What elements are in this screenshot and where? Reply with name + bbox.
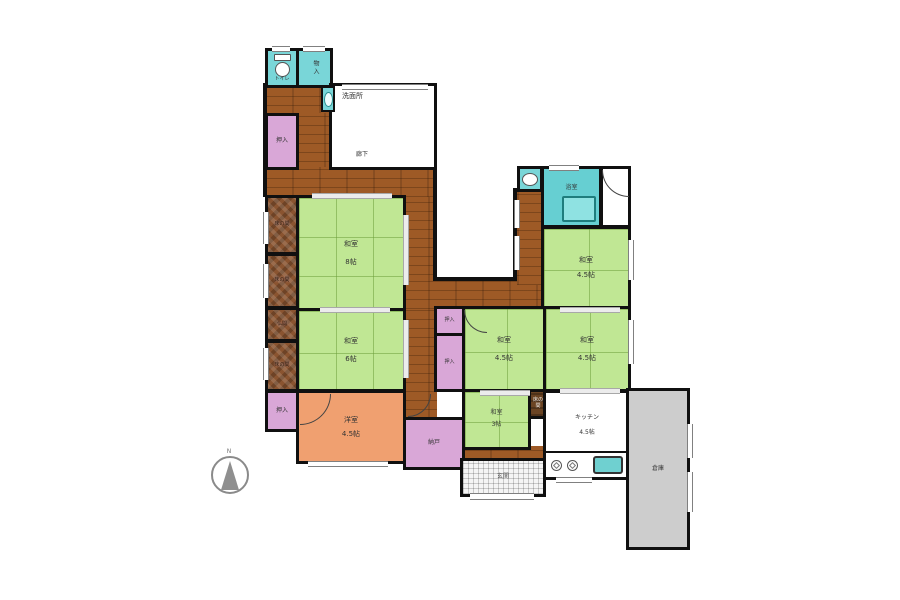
washroom-label: 洗面所 [342, 92, 363, 100]
window [549, 165, 579, 171]
floor-plan: トイレ 物入 押入 洗面所 廊下 床の間 床の間 仏間 床の間 押入 和室 8帖… [0, 0, 900, 600]
room-washitsu-3: 和室 3帖 [462, 389, 531, 450]
sliding-door [480, 390, 530, 396]
compass: N [210, 452, 248, 494]
entrance-label: 玄関 [497, 474, 509, 481]
room-size: 4.5帖 [495, 354, 513, 362]
window [263, 212, 269, 244]
sliding-door [560, 388, 620, 394]
window [263, 348, 269, 380]
corridor-left-upper [297, 113, 333, 171]
stove-burner-icon [567, 460, 578, 471]
window [308, 461, 388, 467]
altar-room-label: 仏間 [277, 322, 287, 328]
storeroom-label: 納戸 [428, 440, 440, 447]
room-size: 4.5帖 [577, 271, 595, 279]
window [342, 84, 428, 90]
window [272, 46, 290, 52]
room-size: 4.5帖 [578, 354, 596, 362]
bathroom-label: 浴室 [565, 185, 577, 192]
compass-north-label: N [227, 448, 232, 455]
room-size: 6帖 [345, 355, 356, 363]
toilet-label: トイレ [274, 77, 289, 83]
room-size: 4.5帖 [342, 430, 360, 438]
kitchen-sink-icon [593, 456, 623, 474]
window [687, 472, 693, 512]
room-washitsu-top-right: 和室 4.5帖 [541, 226, 631, 309]
room-washitsu-8: 和室 8帖 [296, 195, 406, 311]
bathtub-icon [562, 196, 596, 222]
window [303, 46, 325, 52]
window [687, 424, 693, 458]
closet-label: 押入 [444, 318, 454, 324]
room-toilet: トイレ [265, 48, 299, 88]
room-alcove-2: 床の間 [265, 253, 299, 309]
room-washitsu-6: 和室 6帖 [296, 308, 406, 392]
room-warehouse: 倉庫 [626, 388, 690, 550]
room-size: 8帖 [345, 258, 356, 266]
room-altar: 仏間 [265, 307, 299, 342]
window [628, 320, 634, 364]
room-storeroom: 納戸 [403, 417, 465, 470]
room-name: 和室 [580, 336, 594, 344]
room-name: 和室 [344, 240, 358, 248]
alcove-label: 床の間 [274, 278, 289, 284]
room-closet-2: 押入 [265, 390, 299, 432]
room-size: 4.5帖 [579, 430, 595, 437]
sliding-door [312, 193, 392, 199]
wall-courtyard-left [433, 165, 437, 281]
sliding-door [560, 307, 620, 313]
room-toilet-2 [517, 166, 543, 192]
window [556, 477, 592, 483]
alcove-label: 床の間 [274, 222, 289, 228]
room-alcove-1: 床の間 [265, 195, 299, 255]
room-name: 和室 [579, 256, 593, 264]
room-washitsu-right: 和室 4.5帖 [543, 306, 631, 392]
window [628, 240, 634, 280]
room-closet-4: 押入 [434, 333, 465, 392]
window [514, 236, 520, 270]
sliding-door [320, 307, 390, 313]
entrance-sliding-door [470, 493, 534, 500]
toilet-icon [274, 54, 291, 77]
window [514, 200, 520, 228]
washbasin-icon [321, 86, 335, 112]
sliding-door [403, 215, 409, 285]
corridor-lower-horizontal [401, 281, 545, 309]
room-name: 和室 [497, 336, 511, 344]
hallway-label: 廊下 [356, 152, 368, 159]
room-entrance: 玄関 [460, 458, 546, 497]
room-closet-3: 押入 [434, 306, 465, 336]
kitchen-counter [546, 451, 628, 477]
room-alcove-3: 床の間 [265, 340, 299, 392]
sliding-door [403, 320, 409, 378]
room-name: 和室 [490, 410, 502, 417]
room-bathroom: 浴室 [541, 166, 602, 228]
alcove-label: 床の間 [274, 363, 289, 369]
room-name: 和室 [344, 337, 358, 345]
closet-label: 押入 [276, 408, 288, 415]
room-storage: 物入 [296, 48, 333, 88]
warehouse-label: 倉庫 [652, 466, 664, 473]
toilet-2-icon [522, 173, 538, 186]
stove-burner-icon [551, 460, 562, 471]
closet-label: 押入 [276, 138, 288, 145]
room-name: キッチン [575, 415, 599, 422]
compass-circle [211, 456, 249, 494]
room-kitchen: キッチン 4.5帖 [543, 390, 631, 480]
closet-label: 押入 [444, 360, 454, 366]
compass-needle-icon [221, 461, 239, 490]
wall-courtyard-bottom [433, 277, 517, 281]
room-name: 洋室 [344, 416, 358, 424]
window [263, 264, 269, 298]
room-closet-1: 押入 [265, 113, 299, 170]
storage-label: 物入 [311, 60, 318, 76]
room-size: 3帖 [492, 422, 502, 429]
